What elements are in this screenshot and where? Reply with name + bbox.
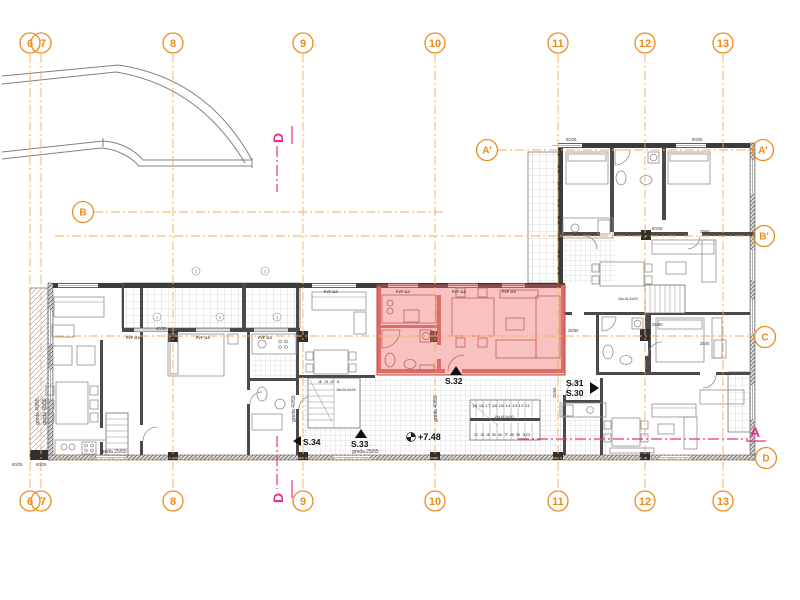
unit-label-s30: S.30 <box>566 388 584 398</box>
window-label-pvf-4: PVF 110 <box>324 290 338 294</box>
rev-marker-2: 1 <box>264 270 266 274</box>
grid-col-10-top: 10 <box>429 38 441 50</box>
level-text: +7.48 <box>418 432 441 442</box>
grid-col-11-bottom: 11 <box>552 496 564 508</box>
unit-label-s34: S.34 <box>303 437 321 447</box>
dim-2560-a: 25/60 <box>568 328 579 333</box>
stair-main-lower-steps: 2 3 4 5 6 7 8 9 10 <box>474 433 530 437</box>
grid-col-9-top: 9 <box>300 38 306 50</box>
grid-row-c: C <box>761 333 768 344</box>
stair-west <box>308 378 360 428</box>
unit-label-s32: S.32 <box>445 376 463 386</box>
window-label-pvf-6: PVF 110 <box>452 290 466 294</box>
grid-col-13-bottom: 13 <box>717 496 729 508</box>
unit-label-s33: S.33 <box>351 439 369 449</box>
grid-row-a-right: A' <box>758 146 768 157</box>
window-label-pvf-1: PVF 110 <box>126 336 140 340</box>
rev-marker-3: 1 <box>156 316 158 320</box>
grid-col-12-bottom: 12 <box>639 496 651 508</box>
grid-col-13-top: 13 <box>717 38 729 50</box>
dim-2560: 2560 <box>700 229 710 234</box>
dim-8025-a: 80/25 <box>566 137 577 142</box>
window-label-pvf-2: PVF 110 <box>196 336 210 340</box>
beam-left-a: greda 40/55 <box>35 398 41 425</box>
stair-east <box>645 285 685 313</box>
beam-left-b: greda 40/55 <box>42 398 48 425</box>
stair-main-upper-steps: 19 18 17 16 15 14 13 12 11 <box>472 404 530 408</box>
floor-plan-canvas: 6 7 8 9 10 11 12 13 6 7 8 9 10 11 12 13 … <box>0 0 800 600</box>
beam-bottom-a: greda 25/55 <box>100 449 127 455</box>
stair-east-spec: 16x16,4x29 <box>618 297 638 301</box>
section-d-top-label: D <box>270 133 286 143</box>
dim-2555: 25/55 <box>552 387 557 398</box>
grid-row-a-left: A' <box>482 146 492 157</box>
dim-2540: 2540 <box>700 341 710 346</box>
grid-col-8-bottom: 8 <box>170 496 176 508</box>
grid-row-b-prime: B' <box>759 232 769 243</box>
dim-2560-b: 25/60 <box>652 322 663 327</box>
grid-row-b: B <box>79 208 86 219</box>
rev-marker-5: 1 <box>276 316 278 320</box>
dim-8025-c: 80/25 <box>652 226 663 231</box>
grid-row-d: D <box>762 454 769 465</box>
beam-bottom-b: greda 25/55 <box>352 449 379 455</box>
beam-stair: greda 40/55 <box>433 395 439 422</box>
grid-col-9-bottom: 9 <box>300 496 306 508</box>
stair-west-steps: 4 3 2 1 <box>318 380 340 384</box>
highlighted-unit-s32 <box>377 285 565 375</box>
dim-6025-b: 60/25 <box>36 462 47 467</box>
rev-marker-4: 1 <box>219 316 221 320</box>
dim-6025-a: 60/25 <box>12 462 23 467</box>
grid-col-12-top: 12 <box>639 38 651 50</box>
stair-west-spec: 16x16,5x28 <box>336 388 356 392</box>
stair-main-spec: 19x16,5x30 <box>494 415 514 419</box>
window-label-pvf-5: PVF 110 <box>396 290 410 294</box>
window-label-pvf-7: PVF 110 <box>502 290 516 294</box>
grid-col-7-top: 7 <box>40 38 46 50</box>
grid-col-11-top: 11 <box>552 38 564 50</box>
grid-col-10-bottom: 10 <box>429 496 441 508</box>
unit-label-s31: S.31 <box>566 378 584 388</box>
dim-8025-b: 80/25 <box>692 137 703 142</box>
site-road-curves <box>2 65 252 168</box>
grid-col-7-bottom: 7 <box>40 496 46 508</box>
section-d-bottom-label: D <box>270 493 286 503</box>
section-a-right-label: A <box>750 424 760 440</box>
rev-marker-1: 1 <box>195 270 197 274</box>
grid-col-8-top: 8 <box>170 38 176 50</box>
beam-mid: greda 40/55 <box>291 395 297 422</box>
dim-4055: 40/55 <box>156 326 167 331</box>
window-label-pvf-3: PVF 110 <box>258 336 272 340</box>
